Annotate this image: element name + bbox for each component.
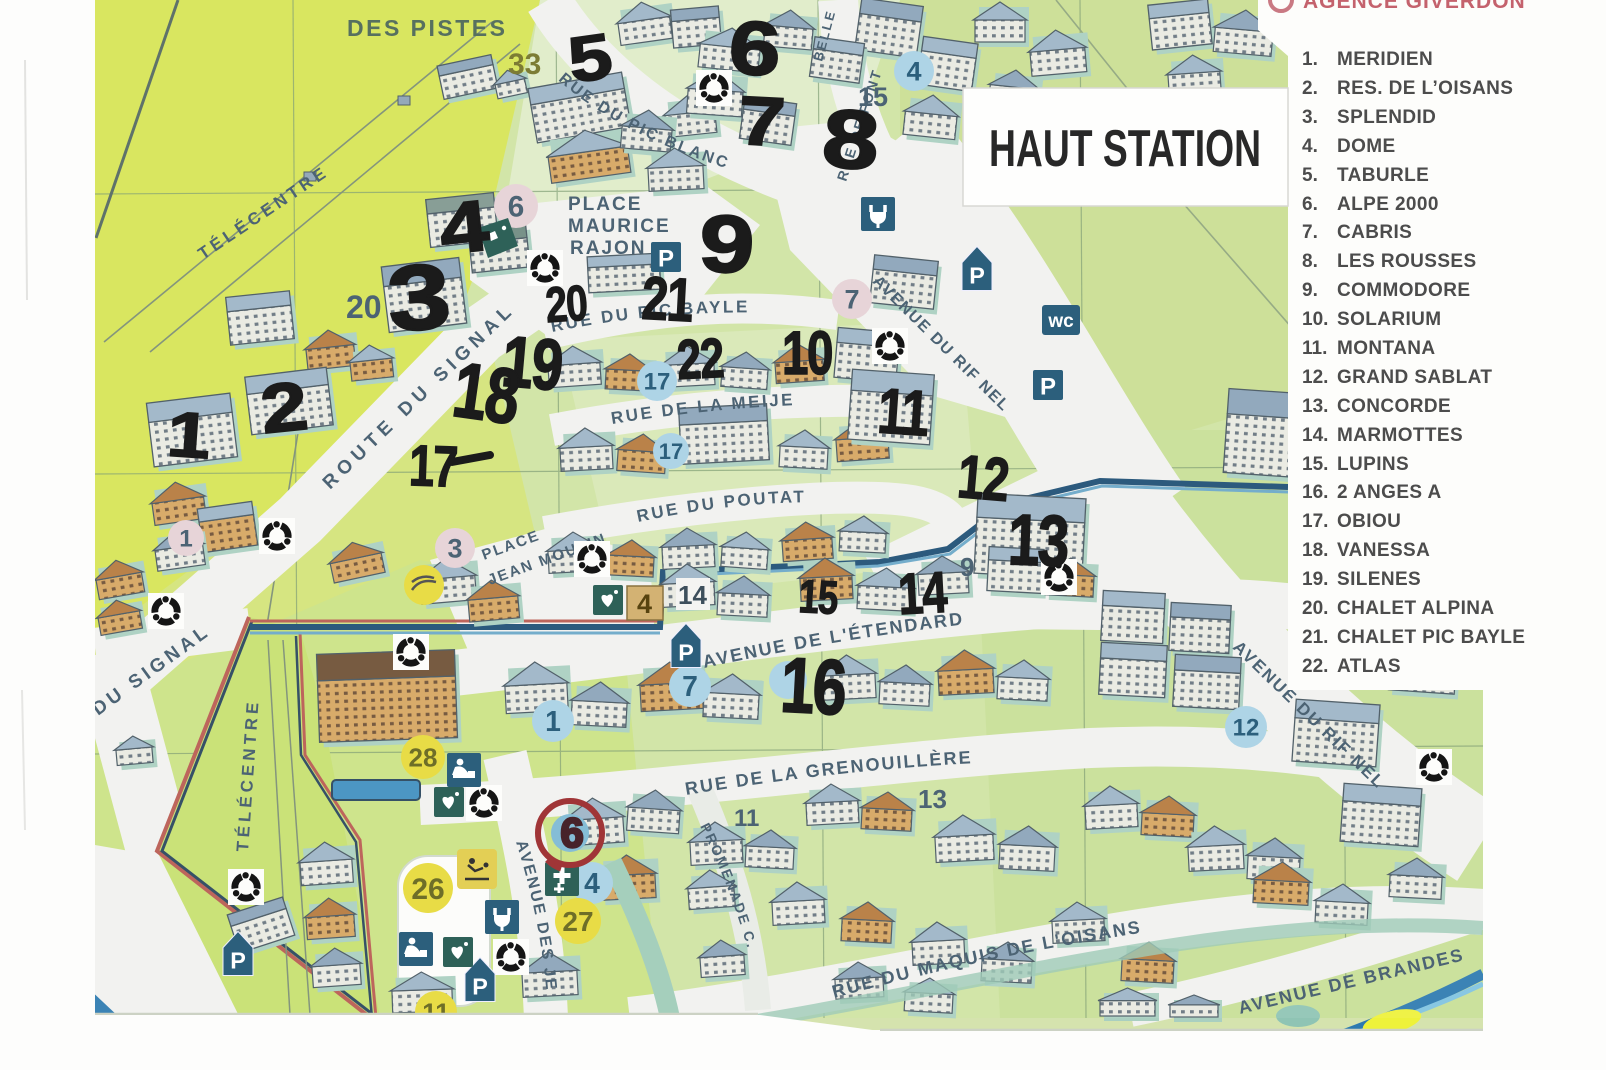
svg-text:GRAND SABLAT: GRAND SABLAT — [1337, 367, 1492, 388]
svg-text:14.: 14. — [1302, 425, 1328, 446]
svg-text:11: 11 — [734, 805, 759, 832]
svg-text:20: 20 — [346, 289, 382, 325]
svg-text:SPLENDID: SPLENDID — [1337, 107, 1436, 128]
svg-text:15: 15 — [797, 570, 839, 624]
svg-text:9: 9 — [697, 198, 757, 291]
svg-text:9.: 9. — [1302, 280, 1318, 301]
svg-text:18.: 18. — [1302, 540, 1328, 561]
svg-text:VANESSA: VANESSA — [1337, 540, 1430, 561]
svg-text:wc: wc — [1047, 311, 1074, 332]
svg-text:LUPINS: LUPINS — [1337, 454, 1409, 475]
svg-text:13.: 13. — [1302, 396, 1328, 417]
svg-text:8.: 8. — [1302, 251, 1318, 272]
svg-text:2: 2 — [257, 367, 312, 449]
svg-text:LES ROUSSES: LES ROUSSES — [1337, 251, 1477, 272]
svg-text:P: P — [969, 263, 985, 289]
svg-text:4.: 4. — [1302, 136, 1318, 157]
svg-text:MARMOTTES: MARMOTTES — [1337, 425, 1463, 446]
svg-text:DES PISTES: DES PISTES — [347, 15, 507, 41]
svg-text:SILENES: SILENES — [1337, 569, 1421, 590]
svg-text:22.: 22. — [1302, 656, 1328, 677]
svg-text:7.: 7. — [1302, 222, 1318, 243]
svg-text:14: 14 — [678, 580, 707, 610]
svg-text:4: 4 — [436, 185, 493, 270]
svg-text:7: 7 — [844, 285, 859, 315]
svg-text:MERIDIEN: MERIDIEN — [1337, 49, 1433, 70]
svg-text:P: P — [472, 974, 488, 1000]
svg-text:16.: 16. — [1302, 482, 1328, 503]
svg-text:17.: 17. — [1302, 511, 1328, 532]
svg-text:7: 7 — [737, 82, 788, 161]
svg-text:11.: 11. — [1302, 338, 1327, 359]
svg-text:6: 6 — [560, 809, 583, 856]
svg-text:33: 33 — [508, 48, 541, 81]
svg-text:SOLARIUM: SOLARIUM — [1337, 309, 1442, 330]
svg-text:12.: 12. — [1302, 367, 1328, 388]
svg-text:12: 12 — [955, 441, 1011, 514]
svg-text:21.: 21. — [1302, 627, 1328, 648]
svg-text:3.: 3. — [1302, 107, 1318, 128]
svg-text:MONTANA: MONTANA — [1337, 338, 1436, 359]
svg-text:4: 4 — [637, 589, 652, 619]
svg-text:P: P — [678, 640, 694, 666]
svg-text:RES. DE L’OISANS: RES. DE L’OISANS — [1337, 78, 1513, 99]
svg-text:12: 12 — [1233, 715, 1260, 742]
svg-text:1: 1 — [179, 526, 193, 553]
svg-text:16: 16 — [779, 641, 848, 731]
svg-text:CHALET PIC BAYLE: CHALET PIC BAYLE — [1337, 627, 1525, 648]
svg-text:ALPE 2000: ALPE 2000 — [1337, 194, 1439, 215]
svg-text:11: 11 — [875, 375, 930, 450]
svg-text:20.: 20. — [1302, 598, 1328, 619]
svg-text:27: 27 — [562, 906, 593, 937]
svg-text:CONCORDE: CONCORDE — [1337, 396, 1451, 417]
svg-text:18: 18 — [448, 346, 524, 441]
svg-text:7: 7 — [682, 671, 698, 703]
svg-text:P: P — [1040, 374, 1056, 401]
svg-text:14: 14 — [897, 560, 949, 627]
svg-text:TABURLE: TABURLE — [1337, 165, 1429, 186]
svg-text:CABRIS: CABRIS — [1337, 222, 1412, 243]
svg-text:8: 8 — [820, 91, 883, 188]
svg-text:15.: 15. — [1302, 454, 1328, 475]
svg-text:6: 6 — [508, 191, 525, 224]
svg-text:17: 17 — [408, 434, 458, 500]
svg-text:MAURICE: MAURICE — [568, 216, 671, 237]
svg-text:6.: 6. — [1302, 194, 1318, 215]
svg-text:17: 17 — [644, 369, 671, 396]
svg-text:1: 1 — [545, 706, 561, 738]
svg-text:28: 28 — [409, 742, 438, 772]
svg-text:19.: 19. — [1302, 569, 1328, 590]
svg-text:17: 17 — [659, 439, 683, 464]
svg-text:26: 26 — [411, 873, 444, 906]
svg-text:PLACE: PLACE — [568, 194, 642, 215]
svg-text:22: 22 — [675, 327, 724, 392]
svg-text:10.: 10. — [1302, 309, 1328, 330]
svg-text:10: 10 — [782, 318, 832, 387]
svg-text:13: 13 — [918, 784, 947, 814]
svg-text:4: 4 — [584, 868, 600, 900]
svg-text:6: 6 — [727, 4, 783, 92]
svg-text:1.: 1. — [1302, 49, 1318, 70]
svg-text:HAUT STATION: HAUT STATION — [989, 120, 1261, 178]
svg-text:13: 13 — [1007, 499, 1069, 581]
svg-text:CHALET ALPINA: CHALET ALPINA — [1337, 598, 1495, 619]
svg-text:P: P — [230, 948, 246, 974]
svg-text:1: 1 — [165, 398, 213, 473]
svg-text:DOME: DOME — [1337, 136, 1396, 157]
svg-text:4: 4 — [906, 57, 921, 87]
svg-text:5.: 5. — [1302, 165, 1318, 186]
svg-text:2 ANGES A: 2 ANGES A — [1337, 482, 1442, 503]
svg-text:ATLAS: ATLAS — [1337, 656, 1401, 677]
svg-text:21: 21 — [640, 263, 694, 335]
svg-text:OBIOU: OBIOU — [1337, 511, 1401, 532]
svg-text:3: 3 — [447, 534, 462, 564]
svg-text:2.: 2. — [1302, 78, 1318, 99]
svg-text:RAJON: RAJON — [570, 238, 647, 259]
svg-text:9: 9 — [960, 552, 974, 582]
svg-text:AGENCE GIVERDON: AGENCE GIVERDON — [1303, 0, 1526, 13]
svg-text:COMMODORE: COMMODORE — [1337, 280, 1470, 301]
